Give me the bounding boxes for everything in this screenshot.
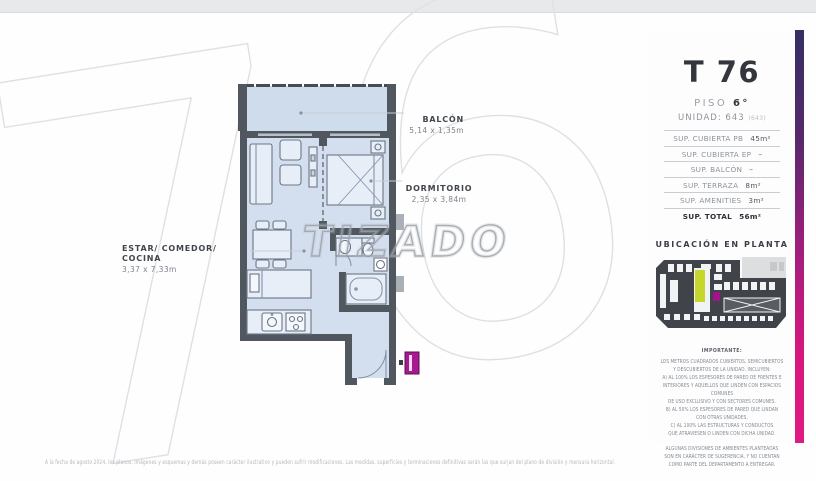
importante-line: B) AL 50% LOS ESPESORES DE PARED QUE LIN… <box>660 406 784 414</box>
note-line: ALGUNAS DIVISIONES DE AMBIENTES PLANTEAD… <box>660 445 784 453</box>
unit-info-panel: T 76 PISO 6° UNIDAD: 643 (643) SUP. CUBI… <box>649 30 806 443</box>
note-line: SON EN CARÁCTER DE SUGERENCIA, Y NO CUEN… <box>660 453 784 461</box>
area-value: 45m² <box>750 134 771 143</box>
area-value: – <box>749 165 753 174</box>
areas-table: SUP. CUBIERTA PB 45m² SUP. CUBIERTA EP –… <box>664 130 780 223</box>
area-label: SUP. TERRAZA <box>683 181 738 190</box>
balcony-wall-left <box>238 84 247 131</box>
tv-console <box>309 147 317 187</box>
importante-title: IMPORTANTE: <box>660 347 784 356</box>
unit-marker <box>713 292 720 301</box>
importante-line: QUE ATRAVIESEN O LINDEN CON DICHA UNIDAD… <box>660 430 784 438</box>
room-name: BALCÓN <box>402 115 464 125</box>
floor-value: 6° <box>733 98 750 109</box>
room-dimensions: 3,37 x 7,33m <box>122 265 248 274</box>
chair <box>256 221 269 229</box>
tizado-watermark: TIZADO TIZADO <box>300 217 515 266</box>
importante-line: DE USO EXCLUSIVO Y CON SECTORES COMUNES. <box>660 398 784 406</box>
area-label: SUP. CUBIERTA EP <box>682 150 752 159</box>
room-label-estar: ESTAR/ COMEDOR/ COCINA 3,37 x 7,33m <box>122 244 248 274</box>
area-row: SUP. BALCÓN – <box>664 161 780 177</box>
importante-line: CON OTRAS UNIDADES. <box>660 414 784 422</box>
area-label: SUP. BALCÓN <box>691 165 743 174</box>
accent-gradient-bar <box>795 30 804 443</box>
location-title: UBICACIÓN EN PLANTA <box>649 240 795 249</box>
window-living <box>258 134 312 137</box>
floor-label: PISO <box>694 98 727 109</box>
highlighted-unit <box>695 270 705 302</box>
armchair <box>280 165 301 185</box>
area-row: SUP. AMENITIES 3m² <box>664 192 780 208</box>
area-row: SUP. TERRAZA 8m² <box>664 177 780 193</box>
chair <box>256 260 269 268</box>
room-label-balcon: BALCÓN 5,14 x 1,35m <box>402 115 464 135</box>
importante-block: IMPORTANTE: LOS METROS CUADRADOS CUBIERT… <box>660 347 784 469</box>
area-row-total: SUP. TOTAL 56m² <box>664 208 780 224</box>
footer-disclaimer: A la fecha de agosto 2024, los planos, i… <box>45 459 615 466</box>
area-value: 8m² <box>745 181 761 190</box>
unit-title: T 76 <box>649 55 795 89</box>
importante-line: A) AL 100% LOS ESPESORES DE PARED DE FRE… <box>660 374 784 382</box>
room-name: ESTAR/ COMEDOR/ COCINA <box>122 244 248 264</box>
importante-line: INTERIORES Y AQUELLOS QUE LINDEN CON ESP… <box>660 382 784 398</box>
unit-number-line: UNIDAD: 643 (643) <box>649 113 795 123</box>
area-label: SUP. TOTAL <box>683 212 732 221</box>
room-dimensions: 2,35 x 3,84m <box>400 195 478 204</box>
window-bedroom <box>330 134 380 137</box>
room-label-dormitorio: DORMITORIO 2,35 x 3,84m <box>400 184 478 204</box>
bed <box>327 155 383 205</box>
importante-line: C) AL 100% LAS ESTRUCTURAS Y CONDUCTOS <box>660 422 784 430</box>
dining-table <box>253 230 291 259</box>
balcony-wall-right <box>387 84 396 131</box>
floor-line: PISO 6° <box>649 98 795 109</box>
balcony-floor <box>240 86 396 131</box>
stove <box>286 313 305 331</box>
room-dimensions: 5,14 x 1,35m <box>402 126 464 135</box>
area-value: – <box>758 150 762 159</box>
importante-line: Y DESCUBIERTOS DE LA UNIDAD, INCLUYEN: <box>660 366 784 374</box>
area-row: SUP. CUBIERTA PB 45m² <box>664 130 780 146</box>
sofa <box>250 144 272 204</box>
armchair <box>280 140 301 160</box>
floorplan-drawing: 7 6 <box>0 0 650 481</box>
note-line: COMO PARTE DEL DEPARTAMENTO A ENTREGAR. <box>660 461 784 469</box>
area-value: 3m² <box>748 196 764 205</box>
area-row: SUP. CUBIERTA EP – <box>664 146 780 162</box>
chair <box>273 260 286 268</box>
area-label: SUP. CUBIERTA PB <box>673 134 743 143</box>
svg-text:TIZADO: TIZADO <box>300 217 515 266</box>
room-name: DORMITORIO <box>400 184 478 194</box>
nightstand <box>371 141 385 153</box>
location-minimap <box>654 254 790 334</box>
note-block: ALGUNAS DIVISIONES DE AMBIENTES PLANTEAD… <box>660 445 784 469</box>
unit-number: UNIDAD: 643 <box>678 113 745 123</box>
chair <box>273 221 286 229</box>
area-value: 56m² <box>739 212 761 221</box>
pilaster <box>396 276 404 292</box>
importante-line: LOS METROS CUADRADOS CUBIERTOS, SEMICUBI… <box>660 358 784 366</box>
area-label: SUP. AMENITIES <box>680 196 741 205</box>
unit-number-note: (643) <box>748 115 766 122</box>
